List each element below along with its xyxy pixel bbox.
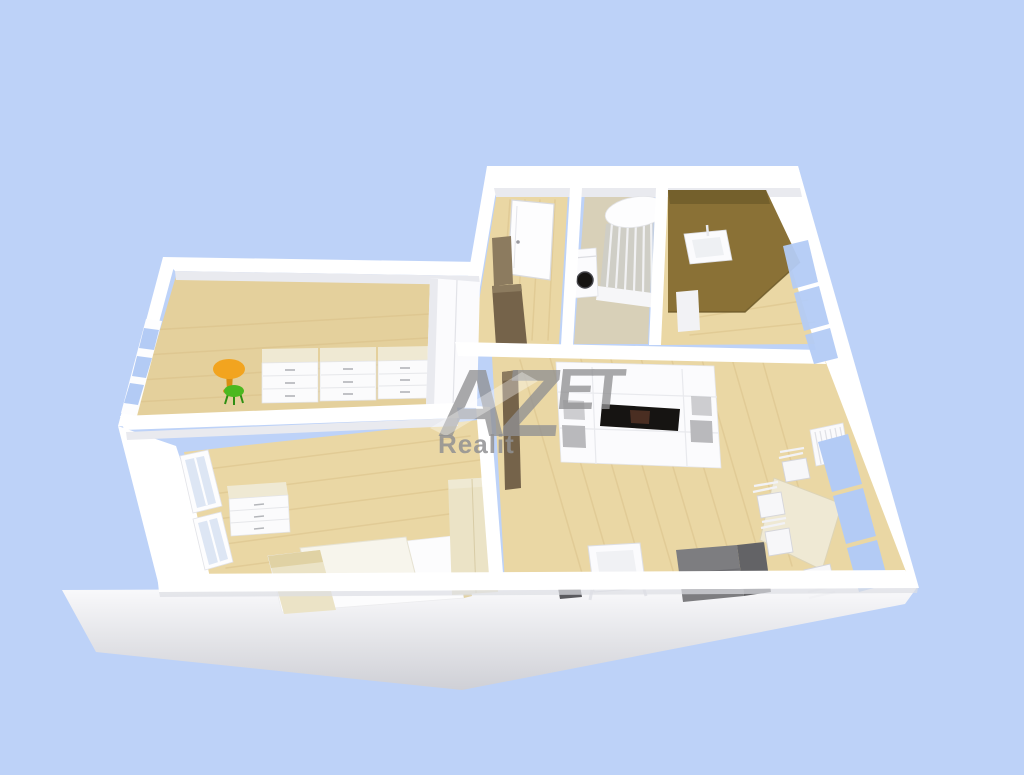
bath-mat	[676, 290, 700, 332]
kids-table	[213, 359, 245, 379]
tv-shelf-box	[691, 396, 712, 416]
sink-basin	[692, 237, 724, 258]
cabinet-top	[378, 346, 432, 361]
watermark-subtitle: Realit	[438, 429, 515, 459]
hall-low-cabinet	[492, 284, 527, 346]
cabinet-front	[320, 361, 376, 401]
kids-stool	[224, 385, 244, 397]
tv-shelf-box	[690, 420, 713, 443]
tv-shelf-box	[562, 425, 586, 448]
chair-seat	[765, 528, 793, 556]
floorplan-render: AZET Realit	[0, 0, 1024, 775]
cabinet-row	[262, 346, 432, 403]
tv-screen-image	[630, 410, 650, 424]
chair-seat	[782, 458, 810, 482]
north-wall	[487, 166, 804, 188]
bathroom-brown-north-face	[668, 190, 770, 204]
chair-seat	[757, 492, 785, 518]
cabinet-top	[320, 347, 376, 362]
hall-tall-cabinet	[492, 236, 513, 286]
cabinet-top	[262, 348, 318, 363]
floorplan-image: AZET Realit	[0, 0, 1024, 775]
sink-faucet	[707, 225, 708, 236]
door-handle	[516, 240, 520, 244]
dresser-front	[229, 495, 290, 536]
